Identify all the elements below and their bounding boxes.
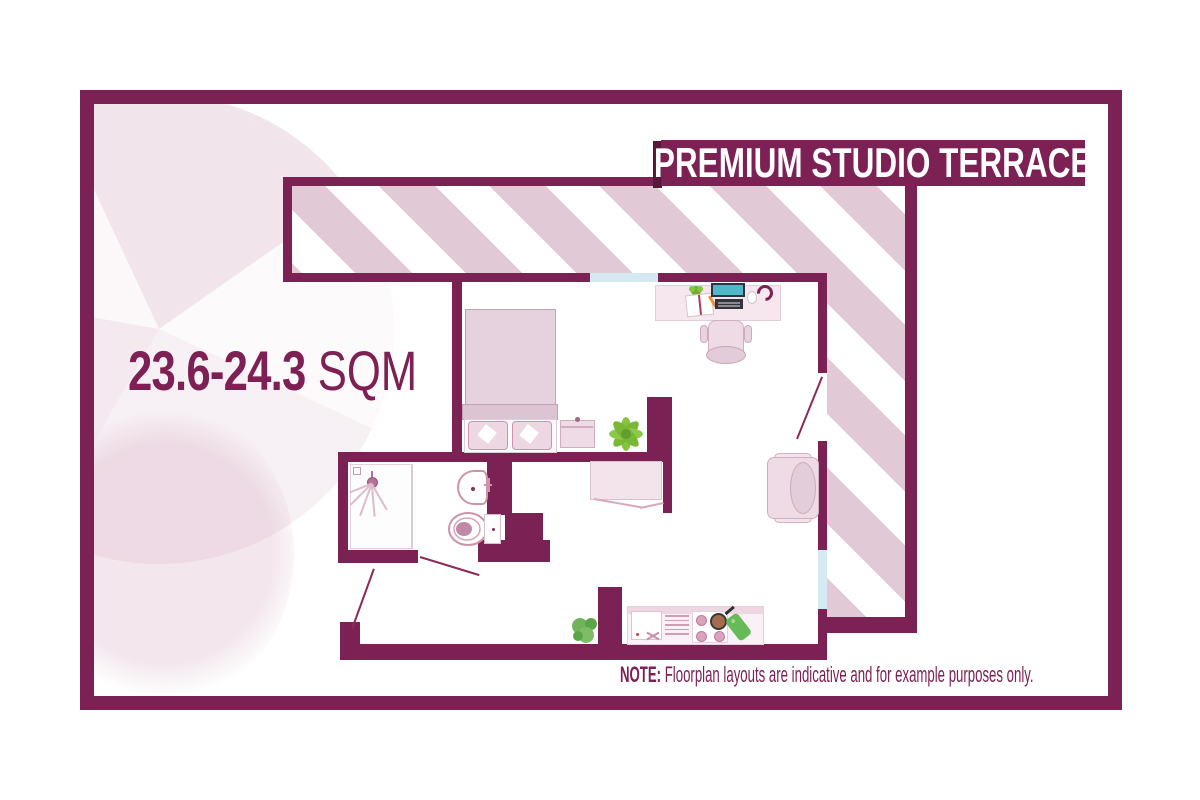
floorplan-page: 23.6-24.3 SQM (0, 0, 1200, 800)
outer-frame (80, 90, 1122, 710)
